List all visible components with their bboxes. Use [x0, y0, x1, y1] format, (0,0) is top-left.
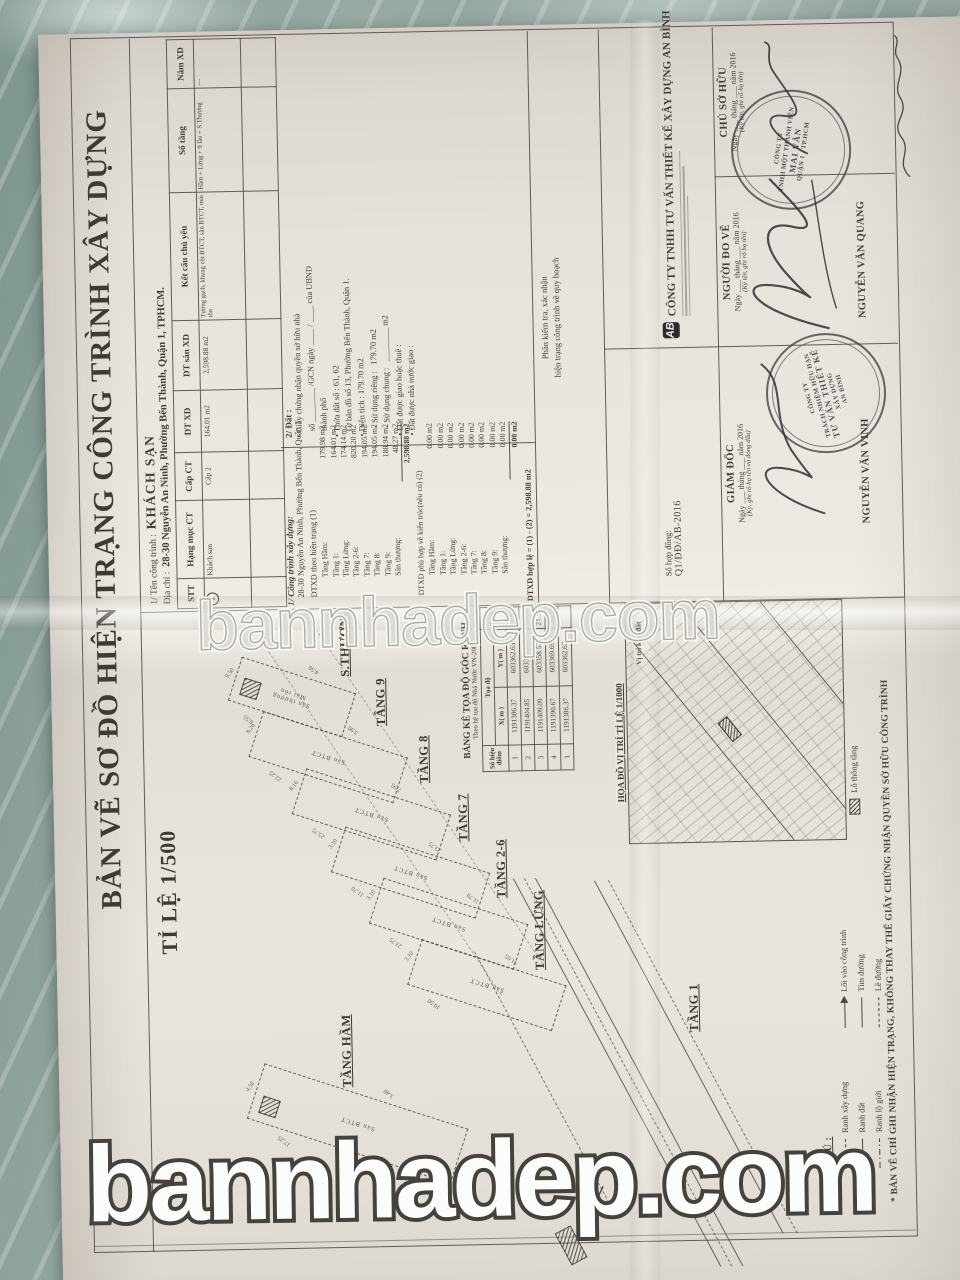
map-property-marker — [718, 716, 742, 742]
table-cell: Khách sạn — [203, 499, 252, 578]
table-header-cell: Kết cấu chủ yếu — [169, 192, 199, 321]
margin-handwriting — [887, 31, 920, 182]
table-cell-empty — [241, 87, 278, 192]
contract-cell: Số hợp đồng: Q1/ĐĐ/AB-2016 — [662, 500, 685, 576]
owner-signature — [735, 33, 828, 165]
coord-cell: 1191404.85 — [520, 687, 534, 745]
company-logo-icon: AB — [663, 322, 680, 338]
arrow-icon — [844, 998, 846, 1028]
company-name: CÔNG TY TNHH TƯ VẤN THIẾT KẾ XÂY DỰNG AN… — [660, 10, 678, 316]
coord-cell: 1191386.37 — [559, 686, 573, 744]
void-legend: Lỗ thông tầng — [845, 745, 863, 814]
table-header-cell: Năm XD — [166, 39, 194, 89]
watermark-bottom: bannhadep.combannhadep.com — [85, 1110, 876, 1246]
table-cell: — — [193, 38, 241, 88]
void-legend-label: Lỗ thông tầng — [849, 746, 859, 793]
table-header-cell: Hạng mục CT — [176, 500, 205, 579]
legend-label: Lối vào công trình — [839, 930, 849, 992]
coord-cell: 1191390.67 — [546, 686, 560, 744]
land-section: 2/ Đất : • Giấy chứng nhận quyền sở hữu … — [276, 35, 420, 438]
project-name: KHÁCH SẠN — [142, 434, 159, 529]
legend-item: Tim đường — [852, 929, 871, 1027]
coord-cell: 2 — [522, 745, 536, 771]
dashdot-icon — [879, 1138, 881, 1168]
sheet-scale: TỈ LỆ 1/500 — [155, 829, 183, 954]
legend-label: Ranh lộ giới — [874, 1090, 884, 1132]
company-address-lines — [679, 146, 691, 316]
plan-hatch — [258, 1096, 281, 1119]
table-cell-empty — [247, 389, 283, 452]
watermark-middle: bannhadep.combannhadep.com — [195, 574, 720, 666]
coord-cell: 1 — [561, 744, 575, 770]
table-header-cell: DT sàn XD — [172, 320, 200, 391]
table-header-cell: Số tầng — [167, 88, 196, 193]
table-cell-empty — [246, 319, 282, 390]
table-header-cell: Cấp CT — [175, 452, 203, 501]
director-signature — [731, 343, 845, 535]
coord-cell: 1191409.09 — [533, 686, 547, 744]
table-cell-empty — [250, 499, 287, 578]
structure-table: STTHạng mục CTCấp CTDT XDDT sàn XDKết cấ… — [166, 37, 287, 609]
table-cell-empty — [240, 38, 276, 88]
site-legend: Lối vào công trìnhTim đườngLề đường — [835, 929, 888, 1028]
table-cell-empty — [249, 451, 285, 500]
table-cell: Tường gạch, khung cột BTCT, sàn BTCT, má… — [196, 191, 246, 320]
plan-hatch — [239, 677, 262, 700]
solid-icon — [861, 998, 863, 1028]
floor-name-label: TẦNG 8 — [416, 735, 432, 783]
surveyor-signature — [726, 168, 849, 340]
company-identity: AB CÔNG TY TNHH TƯ VẤN THIẾT KẾ XÂY DỰNG… — [657, 32, 693, 339]
contract-number: Q1/ĐĐ/AB-2016 — [672, 500, 685, 576]
project-name-label: 1/ Tên công trình : — [149, 534, 160, 605]
dashed-icon — [878, 997, 880, 1027]
coord-cell: 4 — [548, 744, 562, 770]
floor-name-label: TẦNG HẦM — [339, 1014, 355, 1087]
legend-item: Lối vào công trình — [835, 930, 854, 1028]
floor-total-2: 0.00 m2 — [508, 421, 523, 601]
floor-name-label: TẦNG 7 — [455, 793, 471, 841]
table-cell: 2,598.88 m2 — [199, 319, 247, 390]
table-cell: 164.01 m2 — [200, 389, 248, 452]
legend-label: Tim đường — [856, 954, 866, 991]
coord-cell: 3 — [535, 744, 549, 770]
table-cell: Cấp 2 — [202, 451, 250, 500]
table-cell-empty — [243, 191, 281, 320]
table-cell: Hầm + Lửng + 9 lầu + S.Thượng — [194, 87, 243, 192]
land-lines: • Giấy chứng nhận quyền sở hữu nhà số __… — [286, 35, 420, 437]
legend-label: Lề đường — [873, 959, 883, 992]
coord-cell: 1191386.37 — [507, 687, 521, 745]
table-header-cell: DT XD — [173, 390, 201, 453]
void-hatch-icon — [849, 799, 860, 815]
coord-cell: 1 — [509, 745, 523, 771]
